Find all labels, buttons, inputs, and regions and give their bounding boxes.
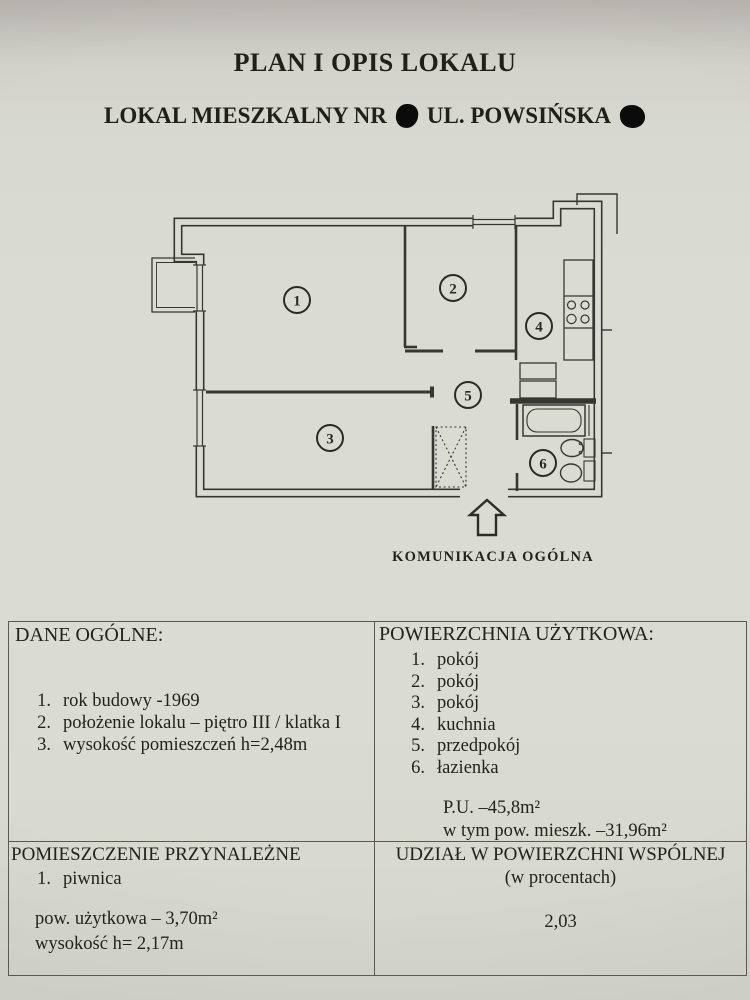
room-number: 6 <box>539 457 547 473</box>
window-room1 <box>192 265 208 311</box>
item-number: 1. <box>33 690 51 712</box>
list-item: 6. łazienka <box>407 758 499 780</box>
item-text: rok budowy -1969 <box>63 690 200 712</box>
redaction-mark-icon <box>619 104 646 129</box>
document-title: PLAN I OPIS LOKALU <box>0 48 750 78</box>
share-percent-value: 2,03 <box>375 911 746 933</box>
wardrobe-icon <box>436 427 466 487</box>
item-number: 3. <box>407 693 425 715</box>
list-item: 3. pokój <box>407 693 479 715</box>
item-number: 3. <box>33 734 51 756</box>
item-number: 2. <box>33 712 51 734</box>
room-number: 2 <box>449 282 457 298</box>
toilet-icon <box>561 461 596 482</box>
item-number: 4. <box>407 715 425 737</box>
section-header-line2: (w procentach) <box>375 867 746 889</box>
document-subtitle: LOKAL MIESZKALNY NR UL. POWSIŃSKA <box>0 103 750 129</box>
window-room2 <box>473 215 515 229</box>
item-text: pokój <box>437 672 479 694</box>
item-text: przedpokój <box>437 736 520 758</box>
subtitle-street: UL. POWSIŃSKA <box>427 103 611 129</box>
cellar-area: pow. użytkowa – 3,70m² <box>35 908 218 930</box>
kitchen-counter <box>520 260 593 398</box>
list-item: 2. położenie lokalu – piętro III / klatk… <box>33 712 341 734</box>
list-item: 5. przedpokój <box>407 736 520 758</box>
list-item: 3. wysokość pomieszczeń h=2,48m <box>33 734 307 756</box>
item-text: wysokość pomieszczeń h=2,48m <box>63 734 307 756</box>
entrance-arrow-icon <box>470 500 504 535</box>
redaction-mark-icon <box>395 103 420 130</box>
item-number: 1. <box>407 650 425 672</box>
item-number: 6. <box>407 758 425 780</box>
section-header: DANE OGÓLNE: <box>15 624 163 646</box>
balcony <box>152 258 195 312</box>
section-header: POMIESZCZENIE PRZYNALEŻNE <box>11 844 301 866</box>
list-item: 1. piwnica <box>33 868 122 890</box>
residential-area: w tym pow. mieszk. –31,96m² <box>443 821 667 843</box>
section-pomieszczenie-przynalezne: POMIESZCZENIE PRZYNALEŻNE 1. piwnica pow… <box>9 842 375 975</box>
item-text: pokój <box>437 693 479 715</box>
info-table: DANE OGÓLNE: 1. rok budowy -1969 2. poło… <box>8 621 747 976</box>
section-dane-ogolne: DANE OGÓLNE: 1. rok budowy -1969 2. poło… <box>9 622 375 842</box>
list-item: 4. kuchnia <box>407 715 496 737</box>
item-text: kuchnia <box>437 715 496 737</box>
room-label-1: 1 <box>284 287 310 313</box>
room-label-4: 4 <box>526 313 552 339</box>
bathtub-icon <box>523 405 589 436</box>
total-usable-area: P.U. –45,8m² <box>443 798 540 820</box>
floor-plan: 1 2 3 4 5 6 <box>140 190 640 550</box>
entrance-gap <box>460 484 508 502</box>
room-number: 3 <box>326 432 334 448</box>
room-label-2: 2 <box>440 275 466 301</box>
list-item: 1. pokój <box>407 650 479 672</box>
item-text: położenie lokalu – piętro III / klatka I <box>63 712 341 734</box>
stove-icon <box>567 301 589 324</box>
exterior-walls <box>178 205 598 493</box>
window-room3 <box>192 390 208 446</box>
item-text: łazienka <box>437 758 499 780</box>
room-label-5: 5 <box>455 382 481 408</box>
list-item: 1. rok budowy -1969 <box>33 690 200 712</box>
room-number: 1 <box>293 294 301 310</box>
item-number: 5. <box>407 736 425 758</box>
list-item: 2. pokój <box>407 672 479 694</box>
room-label-3: 3 <box>317 425 343 451</box>
plan-caption: KOMUNIKACJA OGÓLNA <box>341 549 645 566</box>
item-text: piwnica <box>63 868 122 890</box>
section-udzial: UDZIAŁ W POWIERZCHNI WSPÓLNEJ (w procent… <box>375 842 746 975</box>
room-number: 5 <box>464 389 472 405</box>
sink-icon <box>561 439 595 457</box>
room-number: 4 <box>535 320 543 336</box>
subtitle-prefix: LOKAL MIESZKALNY NR <box>104 103 387 129</box>
cellar-height: wysokość h= 2,17m <box>35 933 184 955</box>
section-header-line1: UDZIAŁ W POWIERZCHNI WSPÓLNEJ <box>375 844 746 866</box>
room-label-6: 6 <box>530 450 556 476</box>
item-number: 1. <box>33 868 51 890</box>
section-header: POWIERZCHNIA UŻYTKOWA: <box>379 624 654 646</box>
item-text: pokój <box>437 650 479 672</box>
item-number: 2. <box>407 672 425 694</box>
section-powierzchnia-uzytkowa: POWIERZCHNIA UŻYTKOWA: 1. pokój 2. pokój… <box>375 622 746 842</box>
